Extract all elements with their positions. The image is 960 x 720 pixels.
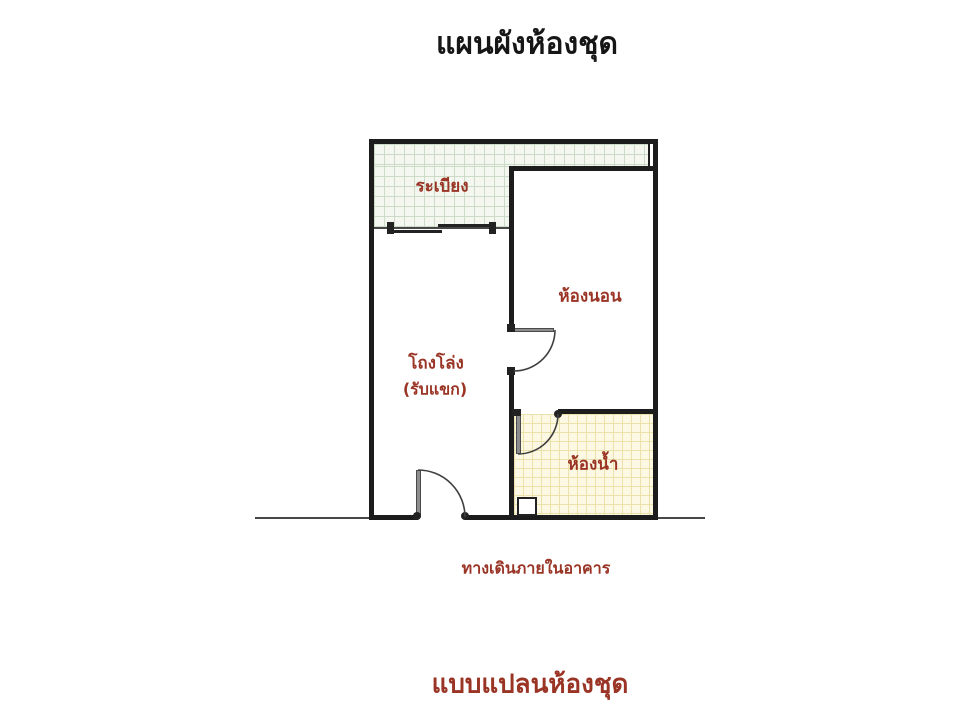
outer-wall-bottom-left — [369, 515, 418, 520]
hall-sublabel: (รับแขก) — [403, 378, 467, 403]
corridor-label: ทางเดินภายในอาคาร — [462, 557, 611, 582]
entrance-door-leaf — [416, 470, 421, 517]
plan-caption: แบบแปลนห้องชุด — [432, 664, 629, 705]
entrance-door-arc — [418, 470, 465, 517]
entrance-door-post-left — [413, 512, 421, 520]
bathroom-door-leaf — [516, 414, 521, 454]
corridor-line-left — [255, 517, 369, 519]
corridor-line-right — [656, 517, 705, 519]
balcony-label: ระเบียง — [415, 173, 468, 200]
floor-plan-page: แผนผังห้องชุด — [0, 0, 960, 720]
outer-wall-right — [653, 139, 658, 520]
partition-wall-lower — [509, 372, 514, 520]
bathroom-label: ห้องน้ำ — [568, 451, 619, 478]
bedroom-top-wall — [509, 166, 658, 171]
bathroom-door-post — [512, 409, 521, 416]
sliding-door-panel-lower — [390, 230, 442, 233]
outer-wall-top — [369, 139, 658, 144]
bedroom-door-arc — [514, 330, 555, 371]
outer-wall-bottom-right — [465, 515, 658, 520]
sliding-door-panel-upper — [438, 224, 494, 227]
bathroom-top-wall — [558, 409, 658, 414]
page-title: แผนผังห้องชุด — [436, 21, 618, 68]
bathroom-door-hinge — [554, 410, 562, 418]
partition-wall-upper — [509, 166, 514, 328]
outer-wall-left — [369, 139, 374, 520]
bedroom-label: ห้องนอน — [558, 283, 621, 310]
hall-label: โถงโล่ง — [408, 350, 464, 377]
ledge-divider — [648, 144, 650, 166]
bedroom-door-post-bottom — [507, 367, 515, 375]
bathroom-shaft-box — [517, 497, 537, 516]
bedroom-door-post-top — [507, 324, 515, 332]
bedroom-door-leaf — [514, 328, 554, 332]
balcony-ledge-strip — [374, 144, 648, 166]
entrance-door-post-right — [461, 512, 469, 520]
